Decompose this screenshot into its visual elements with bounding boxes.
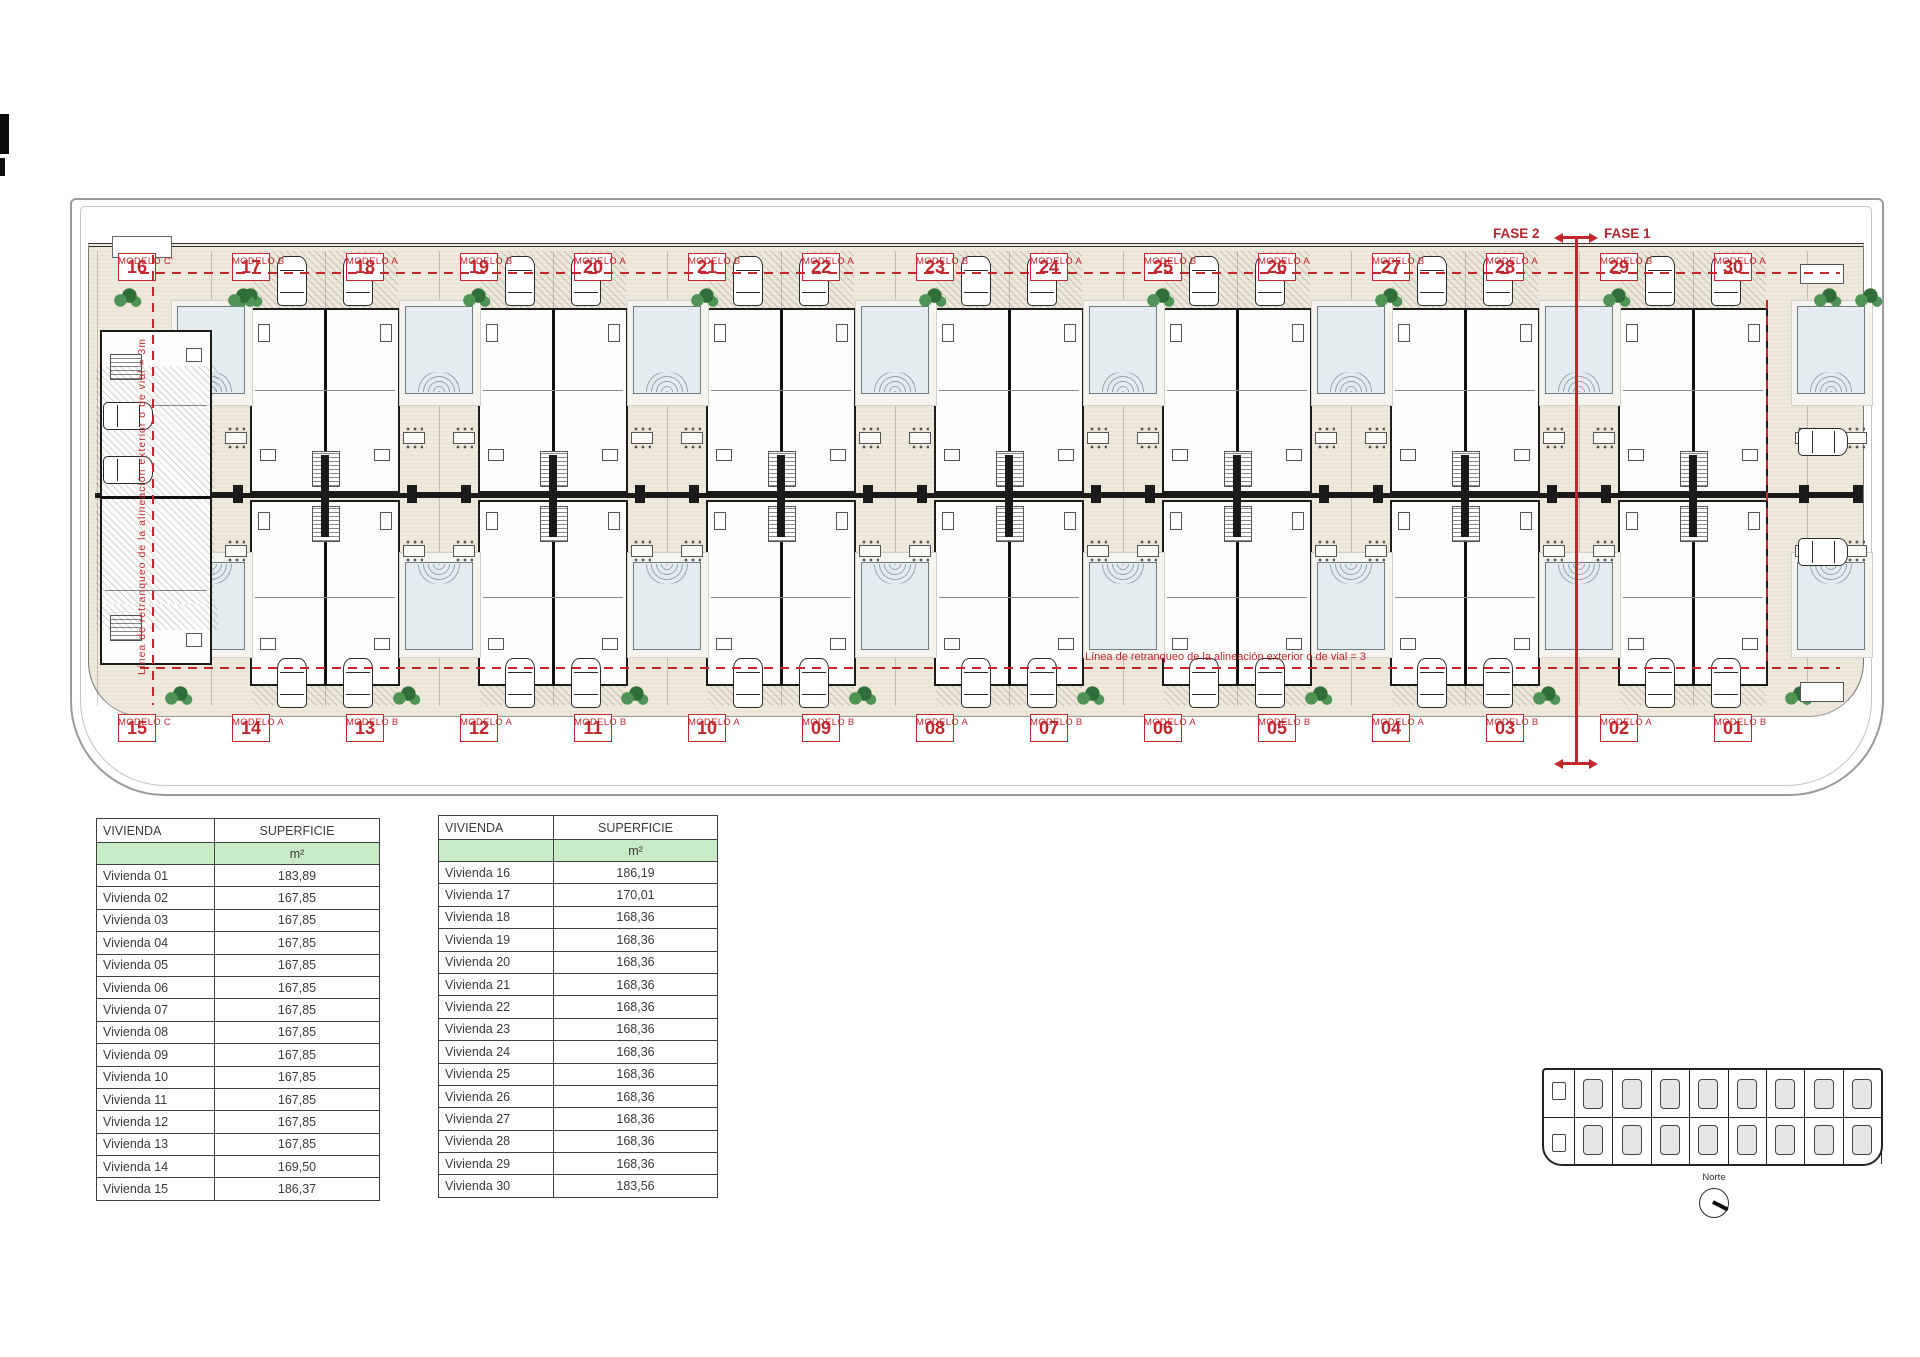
furniture [1742, 449, 1758, 461]
dining-table [1845, 545, 1867, 557]
furniture [944, 449, 960, 461]
entry-paving [96, 604, 218, 630]
dining-table [1593, 432, 1615, 444]
furniture [260, 638, 276, 650]
furniture [1748, 324, 1760, 342]
room-divider [1395, 597, 1535, 598]
furniture [1520, 512, 1532, 530]
tree [1373, 288, 1403, 308]
pool [1089, 562, 1157, 650]
setback-line-left [152, 255, 154, 705]
pool [861, 306, 929, 394]
dining-table [225, 432, 247, 444]
furniture [1400, 449, 1416, 461]
furniture [1628, 449, 1644, 461]
car [1189, 658, 1219, 708]
room-divider [711, 390, 851, 391]
furniture [258, 512, 270, 530]
room-divider [255, 390, 395, 391]
dining-table [909, 545, 931, 557]
furniture [1058, 449, 1074, 461]
utility-box [1800, 264, 1844, 284]
dining-table [631, 545, 653, 557]
room-divider [255, 597, 395, 598]
setback-line-top [140, 272, 1840, 274]
unit-model-label: MODELO A [916, 717, 968, 728]
dining-table [1137, 432, 1159, 444]
dining-table [859, 545, 881, 557]
tree [1531, 686, 1561, 706]
unit-model-label: MODELO B [802, 717, 855, 728]
car [1417, 658, 1447, 708]
unit-model-label: MODELO A [1144, 717, 1196, 728]
car [733, 658, 763, 708]
plan-drawing: 16MODELO C'17MODELO B18MODELO A19MODELO … [0, 0, 1920, 1357]
furniture [944, 638, 960, 650]
dining-table [909, 432, 931, 444]
setback-line-bottom [140, 667, 1840, 669]
unit-model-label: MODELO A [1030, 256, 1082, 267]
unit-model-label: MODELO C [118, 717, 171, 728]
room-divider [483, 390, 623, 391]
furniture [380, 324, 392, 342]
furniture [1398, 324, 1410, 342]
car [1711, 658, 1741, 708]
car [571, 658, 601, 708]
dining-table [1845, 432, 1867, 444]
room-divider [939, 597, 1079, 598]
furniture [1286, 638, 1302, 650]
room-divider [939, 390, 1079, 391]
dining-table [1315, 432, 1337, 444]
furniture [942, 512, 954, 530]
unit-model-label: MODELO B [460, 256, 513, 267]
tree [391, 686, 421, 706]
furniture [380, 512, 392, 530]
furniture [1514, 638, 1530, 650]
furniture [836, 512, 848, 530]
tree [847, 686, 877, 706]
room-divider [483, 597, 623, 598]
dining-table [1543, 545, 1565, 557]
furniture [602, 638, 618, 650]
tree [689, 288, 719, 308]
furniture [942, 324, 954, 342]
furniture [714, 324, 726, 342]
dining-table [403, 545, 425, 557]
pool [1089, 306, 1157, 394]
dining-table [631, 432, 653, 444]
fase-divider-line [1575, 238, 1578, 765]
unit-model-label: MODELO A [346, 256, 398, 267]
furniture [258, 324, 270, 342]
unit-model-label: MODELO B [1258, 717, 1311, 728]
unit-model-label: MODELO C' [118, 256, 173, 267]
unit-model-label: MODELO B [688, 256, 741, 267]
furniture [716, 449, 732, 461]
tree [1145, 288, 1175, 308]
tree [917, 288, 947, 308]
room-divider [1395, 390, 1535, 391]
fase-arrow-top [1558, 236, 1594, 239]
furniture [602, 449, 618, 461]
unit-model-label: MODELO A [232, 717, 284, 728]
unit-model-label: MODELO B [1144, 256, 1197, 267]
furniture [374, 449, 390, 461]
dining-table [1087, 432, 1109, 444]
furniture [1064, 324, 1076, 342]
room-divider [1623, 390, 1763, 391]
furniture [1514, 449, 1530, 461]
fase-arrow-bottom [1558, 762, 1594, 765]
tree [1075, 686, 1105, 706]
room-divider [1623, 597, 1763, 598]
furniture [608, 324, 620, 342]
car [343, 658, 373, 708]
furniture [1398, 512, 1410, 530]
dining-table [453, 432, 475, 444]
furniture [260, 449, 276, 461]
furniture [1742, 638, 1758, 650]
car [1798, 428, 1848, 456]
unit-model-label: MODELO A [1600, 717, 1652, 728]
tree [1601, 288, 1631, 308]
car [277, 658, 307, 708]
dining-table [225, 545, 247, 557]
setback-note-vertical: Línea de retranqueo de la alineación ext… [136, 295, 148, 675]
setback-note: Línea de retranqueo de la alineación ext… [1085, 651, 1366, 663]
tree [1853, 288, 1883, 308]
tree [461, 288, 491, 308]
dining-table [1543, 432, 1565, 444]
room-divider [1167, 390, 1307, 391]
unit-model-label: MODELO B [232, 256, 285, 267]
furniture [1292, 324, 1304, 342]
car [1255, 658, 1285, 708]
car [1483, 658, 1513, 708]
furniture [486, 324, 498, 342]
dining-table [681, 432, 703, 444]
unit-model-label: MODELO B [1714, 717, 1767, 728]
unit-model-label: MODELO A [1714, 256, 1766, 267]
furniture [1064, 512, 1076, 530]
site-plan-sheet: 16MODELO C'17MODELO B18MODELO A19MODELO … [0, 0, 1920, 1357]
car [961, 658, 991, 708]
tree [226, 288, 256, 308]
utility-box [1800, 682, 1844, 702]
dining-table [1365, 545, 1387, 557]
furniture [1286, 449, 1302, 461]
furniture [186, 633, 202, 647]
furniture [486, 512, 498, 530]
furniture [830, 449, 846, 461]
furniture [1400, 638, 1416, 650]
furniture [1058, 638, 1074, 650]
pool [1317, 306, 1385, 394]
furniture [374, 638, 390, 650]
pool [1317, 562, 1385, 650]
pool [405, 562, 473, 650]
furniture [608, 512, 620, 530]
dining-table [403, 432, 425, 444]
pool [405, 306, 473, 394]
tree [619, 686, 649, 706]
furniture [1292, 512, 1304, 530]
dining-table [453, 545, 475, 557]
unit-model-label: MODELO B [346, 717, 399, 728]
furniture [716, 638, 732, 650]
dining-table [1137, 545, 1159, 557]
pool [861, 562, 929, 650]
furniture [714, 512, 726, 530]
furniture [1626, 512, 1638, 530]
furniture [488, 449, 504, 461]
car [1645, 658, 1675, 708]
room-divider [711, 597, 851, 598]
unit-model-label: MODELO B [916, 256, 969, 267]
furniture [1628, 638, 1644, 650]
pool [1797, 306, 1865, 394]
dining-table [1593, 545, 1615, 557]
furniture [1748, 512, 1760, 530]
unit-model-label: MODELO B [1372, 256, 1425, 267]
furniture [186, 348, 202, 362]
furniture [1520, 324, 1532, 342]
car [1027, 658, 1057, 708]
pool [1545, 306, 1613, 394]
unit-model-label: MODELO B [574, 717, 627, 728]
furniture [1626, 324, 1638, 342]
car [505, 658, 535, 708]
furniture [1170, 512, 1182, 530]
furniture [836, 324, 848, 342]
room-divider [1167, 597, 1307, 598]
pool [1545, 562, 1613, 650]
fase-1-label: FASE 1 [1604, 226, 1651, 241]
tree [1812, 288, 1842, 308]
pool [1797, 562, 1865, 650]
central-spine [95, 493, 1856, 498]
unit-model-label: MODELO A [1372, 717, 1424, 728]
unit-model-label: MODELO B [1486, 717, 1539, 728]
dining-table [1087, 545, 1109, 557]
dining-table [1315, 545, 1337, 557]
unit-model-label: MODELO A [574, 256, 626, 267]
dining-table [1365, 432, 1387, 444]
pool [633, 562, 701, 650]
fase-2-label: FASE 2 [1493, 226, 1540, 241]
unit-model-label: MODELO A [1486, 256, 1538, 267]
unit-model-label: MODELO A [688, 717, 740, 728]
furniture [1172, 449, 1188, 461]
unit-model-label: MODELO B [1600, 256, 1653, 267]
setback-line-right [1766, 300, 1768, 668]
pool [633, 306, 701, 394]
dining-table [681, 545, 703, 557]
furniture [488, 638, 504, 650]
furniture [1170, 324, 1182, 342]
unit-model-label: MODELO B [1030, 717, 1083, 728]
car [1798, 538, 1848, 566]
furniture [1172, 638, 1188, 650]
unit-model-label: MODELO A [1258, 256, 1310, 267]
entry-paving [96, 366, 218, 392]
furniture [830, 638, 846, 650]
unit-model-label: MODELO A [802, 256, 854, 267]
car [799, 658, 829, 708]
dining-table [859, 432, 881, 444]
tree [1303, 686, 1333, 706]
tree [163, 686, 193, 706]
unit-model-label: MODELO A [460, 717, 512, 728]
